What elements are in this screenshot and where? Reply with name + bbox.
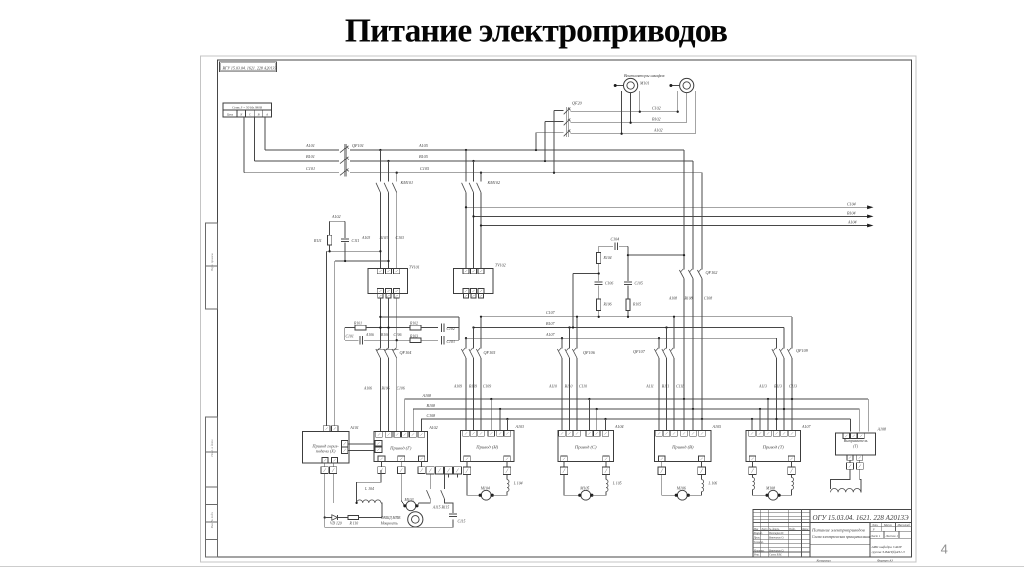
svg-text:В103: В103 bbox=[380, 236, 388, 240]
svg-text:А105: А105 bbox=[712, 424, 721, 429]
svg-text:А107: А107 bbox=[545, 332, 555, 337]
svg-text:ТV102: ТV102 bbox=[495, 263, 506, 268]
svg-text:Лист 1: Лист 1 bbox=[870, 534, 881, 538]
svg-text:R104: R104 bbox=[603, 256, 612, 260]
svg-text:QF101: QF101 bbox=[352, 143, 364, 148]
svg-text:С115: С115 bbox=[458, 520, 466, 524]
svg-text:Масштаб: Масштаб bbox=[897, 523, 911, 527]
svg-text:А102: А102 bbox=[653, 128, 662, 133]
svg-text:Сизов В.М.: Сизов В.М. bbox=[769, 554, 782, 557]
svg-text:А104: А104 bbox=[847, 220, 856, 225]
svg-text:Сеть 3 ~ 50 Hz 380В: Сеть 3 ~ 50 Hz 380В bbox=[232, 105, 262, 109]
svg-text:Привод (В): Привод (В) bbox=[671, 445, 694, 450]
svg-text:Лист: Лист bbox=[760, 528, 767, 531]
svg-text:Ветчинов О.: Ветчинов О. bbox=[769, 537, 784, 540]
svg-text:QF106: QF106 bbox=[583, 350, 596, 355]
svg-text:Пров.: Пров. bbox=[753, 537, 761, 540]
svg-text:Привод (Т): Привод (Т) bbox=[762, 445, 785, 450]
svg-text:А113: А113 bbox=[758, 385, 767, 389]
svg-text:В108: В108 bbox=[427, 403, 435, 408]
svg-text:Н.контр.: Н.контр. bbox=[753, 549, 765, 552]
svg-text:Подп.: Подп. bbox=[788, 528, 796, 531]
svg-text:В104: В104 bbox=[847, 210, 855, 215]
svg-text:Утв.: Утв. bbox=[754, 554, 760, 557]
svg-text:Вентиляторы шкафов: Вентиляторы шкафов bbox=[624, 73, 665, 78]
svg-text:В102: В102 bbox=[652, 117, 660, 122]
svg-text:Изм: Изм bbox=[753, 528, 759, 531]
svg-text:М106: М106 bbox=[676, 486, 686, 490]
svg-text:Питание электроприводов: Питание электроприводов bbox=[345, 13, 728, 50]
svg-text:КМ102: КМ102 bbox=[487, 180, 501, 185]
svg-text:А110: А110 bbox=[548, 385, 557, 389]
svg-text:Привод (Н): Привод (Н) bbox=[475, 445, 498, 450]
svg-text:В107: В107 bbox=[546, 321, 555, 326]
svg-text:В110: В110 bbox=[565, 385, 573, 389]
svg-text:В101: В101 bbox=[306, 154, 315, 159]
svg-text:L 106: L 106 bbox=[708, 481, 718, 485]
svg-text:(Т): (Т) bbox=[853, 444, 859, 449]
svg-text:VD 120: VD 120 bbox=[330, 522, 342, 526]
svg-text:R105: R105 bbox=[632, 303, 641, 307]
svg-text:А103: А103 bbox=[515, 424, 524, 429]
svg-text:С105: С105 bbox=[635, 282, 643, 286]
svg-text:С105: С105 bbox=[420, 166, 429, 171]
svg-text:С102: С102 bbox=[652, 106, 661, 111]
svg-text:А101: А101 bbox=[305, 143, 315, 148]
svg-text:М101: М101 bbox=[639, 81, 649, 86]
svg-text:А108: А108 bbox=[668, 297, 677, 301]
svg-text:С109: С109 bbox=[483, 385, 491, 389]
svg-text:С108: С108 bbox=[704, 297, 712, 301]
svg-text:Привод (Г): Привод (Г) bbox=[389, 445, 412, 450]
svg-text:4: 4 bbox=[941, 542, 948, 557]
svg-text:Листов 1: Листов 1 bbox=[885, 534, 899, 538]
svg-text:А108: А108 bbox=[422, 393, 431, 398]
svg-text:Инв. № подл.: Инв. № подл. bbox=[210, 511, 214, 529]
svg-text:подачи (Х): подачи (Х) bbox=[316, 449, 336, 454]
svg-text:Масса: Масса bbox=[883, 523, 892, 527]
svg-text:А106: А106 bbox=[363, 386, 372, 390]
svg-text:L 105: L 105 bbox=[612, 481, 622, 485]
svg-text:М108: М108 bbox=[765, 486, 775, 490]
svg-text:С113: С113 bbox=[789, 385, 797, 389]
svg-text:ОВШД МПВ: ОВШД МПВ bbox=[381, 516, 401, 520]
svg-text:С106: С106 bbox=[605, 282, 613, 286]
svg-text:А111: А111 bbox=[645, 385, 654, 389]
svg-text:Ветчинов О.: Ветчинов О. bbox=[769, 549, 784, 552]
svg-text:R 110: R 110 bbox=[349, 522, 359, 526]
svg-text:QF20: QF20 bbox=[572, 101, 583, 106]
svg-text:В106: В106 bbox=[381, 333, 389, 337]
svg-text:Мощность: Мощность bbox=[380, 522, 398, 526]
svg-text:В105: В105 bbox=[419, 154, 428, 159]
svg-text:Пехтерев П.: Пехтерев П. bbox=[768, 532, 784, 535]
svg-text:А106: А106 bbox=[365, 333, 374, 337]
svg-text:В109: В109 bbox=[469, 385, 477, 389]
svg-text:А115 В115: А115 В115 bbox=[432, 506, 450, 510]
svg-text:QF107: QF107 bbox=[633, 349, 646, 354]
svg-text:С103: С103 bbox=[447, 340, 455, 344]
svg-text:А101: А101 bbox=[349, 425, 358, 430]
svg-text:R103: R103 bbox=[409, 334, 418, 338]
svg-text:А105: А105 bbox=[418, 143, 428, 148]
svg-text:R102: R102 bbox=[409, 322, 418, 326]
svg-text:QF104: QF104 bbox=[400, 350, 412, 355]
svg-text:Дата: Дата bbox=[801, 528, 809, 531]
svg-text:QF102: QF102 bbox=[706, 270, 718, 275]
svg-text:L 104: L 104 bbox=[364, 487, 374, 491]
svg-text:А103: А103 bbox=[361, 236, 370, 240]
svg-text:С106: С106 bbox=[397, 386, 405, 390]
svg-text:А108: А108 bbox=[877, 427, 886, 432]
svg-text:R106: R106 bbox=[603, 303, 612, 307]
svg-text:С102: С102 bbox=[447, 327, 455, 331]
svg-text:С111: С111 bbox=[676, 385, 684, 389]
svg-text:Схема электрическая принципиал: Схема электрическая принципиальная bbox=[812, 535, 871, 539]
svg-text:А102: А102 bbox=[331, 214, 340, 219]
svg-text:А: А bbox=[265, 113, 268, 117]
svg-text:С104: С104 bbox=[847, 201, 856, 206]
svg-text:ВГУ 15.03.04. 1621. 228 А2013Э: ВГУ 15.03.04. 1621. 228 А2013Э bbox=[223, 65, 278, 70]
svg-text:В113: В113 bbox=[774, 385, 782, 389]
svg-text:С106: С106 bbox=[394, 333, 402, 337]
svg-text:Подп. и дата: Подп. и дата bbox=[210, 439, 214, 458]
svg-text:С101: С101 bbox=[306, 166, 315, 171]
svg-text:В111: В111 bbox=[662, 385, 670, 389]
svg-text:QF109: QF109 bbox=[796, 348, 809, 353]
svg-text:С110: С110 bbox=[579, 385, 587, 389]
svg-text:Питание электроприводов: Питание электроприводов bbox=[811, 528, 865, 533]
svg-text:Привод (С): Привод (С) bbox=[574, 445, 597, 450]
svg-text:Цепь: Цепь bbox=[226, 113, 234, 117]
svg-text:В106: В106 bbox=[382, 386, 390, 390]
svg-text:С101: С101 bbox=[346, 335, 354, 339]
svg-text:АИК кафедра САПР: АИК кафедра САПР bbox=[871, 545, 903, 549]
svg-text:Разраб.: Разраб. bbox=[753, 532, 763, 535]
svg-text:№ докум.: № докум. bbox=[768, 528, 780, 531]
svg-text:А109: А109 bbox=[453, 385, 462, 389]
svg-text:КМ101: КМ101 bbox=[400, 180, 414, 185]
svg-text:В: В bbox=[258, 113, 260, 117]
svg-text:М105: М105 bbox=[579, 486, 589, 490]
svg-text:С103: С103 bbox=[396, 236, 404, 240]
svg-text:Лит.: Лит. bbox=[871, 523, 879, 527]
svg-text:А104: А104 bbox=[614, 424, 623, 429]
svg-text:Т.контр.: Т.контр. bbox=[754, 541, 764, 544]
svg-text:ОГУ 15.03.04. 1621. 228 А2013Э: ОГУ 15.03.04. 1621. 228 А2013Э bbox=[812, 514, 909, 522]
svg-text:С107: С107 bbox=[546, 310, 556, 315]
svg-text:С104: С104 bbox=[611, 236, 620, 241]
svg-text:QF105: QF105 bbox=[484, 350, 496, 355]
svg-text:R101: R101 bbox=[353, 322, 362, 326]
svg-text:В108: В108 bbox=[684, 297, 692, 301]
svg-text:М104: М104 bbox=[480, 486, 490, 490]
svg-text:группа З-ВАП(б)АЭ1-3: группа З-ВАП(б)АЭ1-3 bbox=[872, 550, 905, 554]
svg-text:Копировал: Копировал bbox=[815, 558, 831, 562]
svg-text:А107: А107 bbox=[801, 424, 811, 429]
svg-text:С111: С111 bbox=[352, 239, 360, 243]
svg-text:Перв. примен.: Перв. примен. bbox=[210, 253, 214, 273]
svg-text:ТV101: ТV101 bbox=[409, 265, 420, 270]
svg-text:Формат А3: Формат А3 bbox=[877, 558, 893, 562]
svg-text:R111: R111 bbox=[313, 239, 322, 243]
svg-text:А102: А102 bbox=[428, 425, 437, 430]
svg-text:L 104: L 104 bbox=[513, 481, 523, 485]
svg-text:С108: С108 bbox=[427, 413, 436, 418]
svg-text:Выпрямитель: Выпрямитель bbox=[844, 438, 868, 443]
